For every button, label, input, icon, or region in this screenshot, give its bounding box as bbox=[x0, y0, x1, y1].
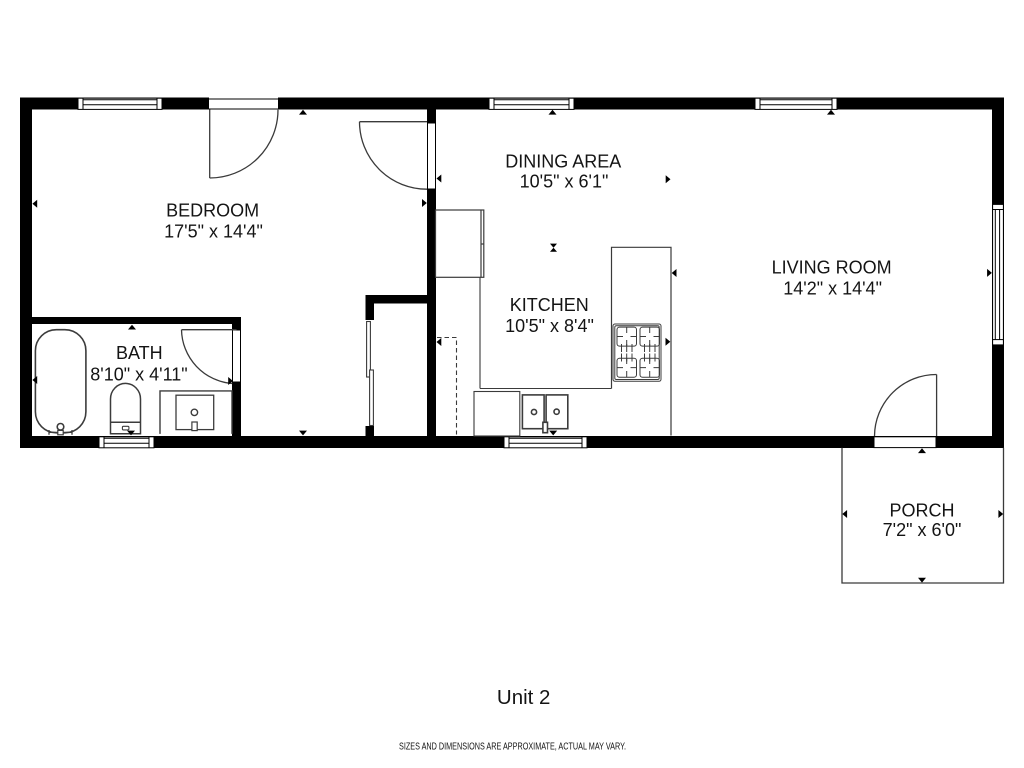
svg-text:BATH: BATH bbox=[116, 343, 163, 363]
svg-text:10'5" x 8'4": 10'5" x 8'4" bbox=[505, 316, 594, 336]
svg-text:PORCH: PORCH bbox=[889, 500, 954, 520]
svg-text:Unit 2: Unit 2 bbox=[497, 686, 551, 709]
svg-text:8'10" x 4'11": 8'10" x 4'11" bbox=[90, 364, 187, 384]
svg-text:17'5" x 14'4": 17'5" x 14'4" bbox=[164, 221, 263, 241]
svg-text:DINING AREA: DINING AREA bbox=[505, 152, 621, 172]
svg-text:KITCHEN: KITCHEN bbox=[510, 295, 589, 315]
svg-text:BEDROOM: BEDROOM bbox=[166, 201, 259, 221]
svg-text:SIZES AND DIMENSIONS ARE APPRO: SIZES AND DIMENSIONS ARE APPROXIMATE, AC… bbox=[399, 742, 626, 753]
svg-text:14'2" x 14'4": 14'2" x 14'4" bbox=[783, 279, 882, 299]
svg-text:10'5" x 6'1": 10'5" x 6'1" bbox=[520, 172, 609, 192]
svg-text:7'2" x 6'0": 7'2" x 6'0" bbox=[883, 520, 962, 540]
svg-text:LIVING ROOM: LIVING ROOM bbox=[772, 258, 892, 278]
